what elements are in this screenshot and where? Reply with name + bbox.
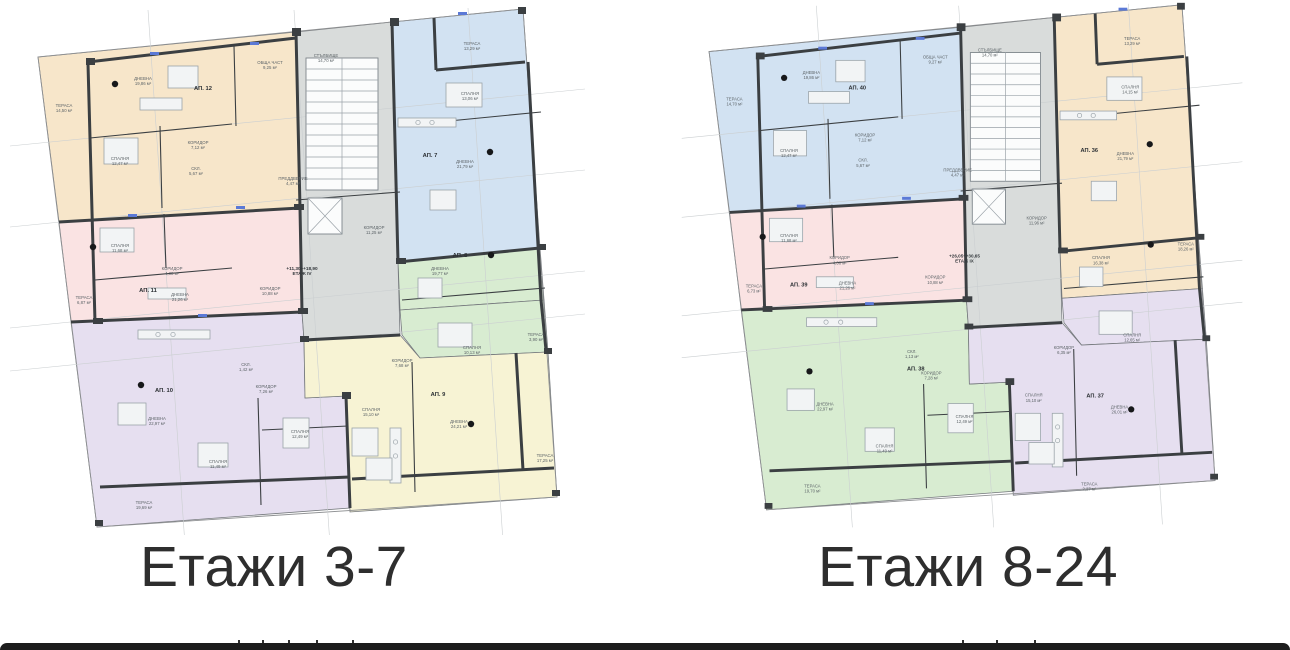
room-label: ТЕРАСА19,70 м² (804, 483, 821, 493)
floor-plan-floors-8-24: АП. 40АП. 36АП. 39АП. 38АП. 37ТЕРАСА14,7… (682, 3, 1243, 528)
room-label: ТЕРАСА2,27 м² (1081, 481, 1097, 491)
apartment-label: АП. 39 (790, 283, 807, 289)
apartment-label: АП. 37 (1086, 394, 1103, 400)
bottom-bar-tick (352, 640, 354, 643)
room-label: СПАЛНЯ10,13 м² (463, 345, 481, 355)
core-label: КОРИДОР10,88 м² (925, 275, 946, 285)
apartment-label: АП. 11 (139, 288, 157, 294)
room-label: СПАЛНЯ12,49 м² (291, 429, 309, 439)
room-label: СПАЛНЯ12,47 м² (111, 156, 129, 166)
caption-floors-3-7: Етажи 3-7 (140, 534, 408, 600)
room-label: СПАЛНЯ11,68 м² (111, 243, 129, 253)
bottom-bar-tick (1034, 640, 1036, 643)
bottom-bar-tick (996, 640, 998, 643)
room-label: ТЕРАСА3,90 м² (528, 332, 545, 342)
room-label: ТЕРАСА14,70 м² (726, 96, 743, 106)
room-label: ДНЕВНА19,77 м² (431, 266, 449, 276)
room-label: ДНЕВНА26,01 м² (1111, 404, 1128, 414)
room-label: СПАЛНЯ15,10 м² (1025, 393, 1043, 403)
floor-plan-sheet: АП. 12АП. 7АП. 11АП. 8АП. 10АП. 9ТЕРАСА1… (0, 0, 1290, 650)
apartment-label: АП. 12 (194, 86, 212, 92)
floor-plans-canvas: АП. 12АП. 7АП. 11АП. 8АП. 10АП. 9ТЕРАСА1… (0, 0, 1290, 535)
room-label: ТЕРАСА18,26 м² (1178, 242, 1195, 252)
apartment-label: АП. 8 (453, 253, 468, 259)
room-label: ДНЕВНА21,26 м² (839, 281, 856, 291)
room-label: СПАЛНЯ16,38 м² (1092, 255, 1110, 265)
room-label: СПАЛНЯ12,49 м² (956, 414, 974, 424)
room-label: ДНЕВНА22,97 м² (816, 401, 833, 411)
room-label: ТЕРАСА13,29 м² (464, 41, 481, 51)
bottom-bar-tick (316, 640, 318, 643)
apartment-label: АП. 10 (155, 388, 173, 394)
bottom-bar (0, 643, 1290, 650)
room-label: ДНЕВНА21,79 м² (1117, 151, 1134, 161)
room-label: СПАЛНЯ12,47 м² (780, 148, 798, 158)
bottom-bar-tick (962, 640, 964, 643)
room-label: ДНЕВНА21,26 м² (171, 292, 189, 302)
room-label: ДНЕВНА21,79 м² (456, 159, 474, 169)
bottom-bar-tick (288, 640, 290, 643)
apartment-label: АП. 36 (1081, 148, 1098, 154)
room-label: ТЕРАСА13,29 м² (1124, 36, 1141, 46)
room-label: ТЕРАСА14,50 м² (56, 103, 73, 113)
core-label: КОРИДОР10,88 м² (260, 286, 281, 296)
room-label: ДНЕВНА19,86 м² (803, 70, 820, 80)
room-label: СПАЛНЯ13,06 м² (461, 91, 479, 101)
room-label: ТЕРАСА17,25 м² (537, 453, 554, 463)
room-label: ДНЕВНА22,97 м² (148, 416, 166, 426)
room-label: ДНЕВНА24,21 м² (450, 419, 468, 429)
floor-plan-floors-3-7: АП. 12АП. 7АП. 11АП. 8АП. 10АП. 9ТЕРАСА1… (10, 7, 585, 535)
apartment-label: АП. 9 (431, 392, 446, 398)
room-label: ТЕРАСА6,73 м² (746, 284, 762, 294)
room-label: СПАЛНЯ15,10 м² (362, 407, 380, 417)
room-label: КОРИДОР11,25 м² (364, 225, 385, 235)
room-label: СПАЛНЯ11,49 м² (209, 459, 227, 469)
room-label: ТЕРАСА19,69 м² (136, 500, 153, 510)
room-label: ТЕРАСА6,87 м² (76, 295, 93, 305)
room-label: СПАЛНЯ11,68 м² (780, 233, 798, 243)
room-label: СПАЛНЯ11,49 м² (876, 443, 894, 453)
room-label: КОРИДОР11,96 м² (1026, 215, 1047, 225)
apartment-label: АП. 7 (423, 153, 438, 159)
apartment-label: АП. 40 (849, 86, 866, 92)
bottom-bar-tick (238, 640, 240, 643)
room-label: СПАЛНЯ14,15 м² (1121, 85, 1139, 95)
caption-floors-8-24: Етажи 8-24 (818, 534, 1118, 600)
room-label: СПАЛНЯ12,65 м² (1123, 332, 1141, 342)
room-label: ДНЕВНА19,86 м² (134, 76, 152, 86)
bottom-bar-tick (262, 640, 264, 643)
